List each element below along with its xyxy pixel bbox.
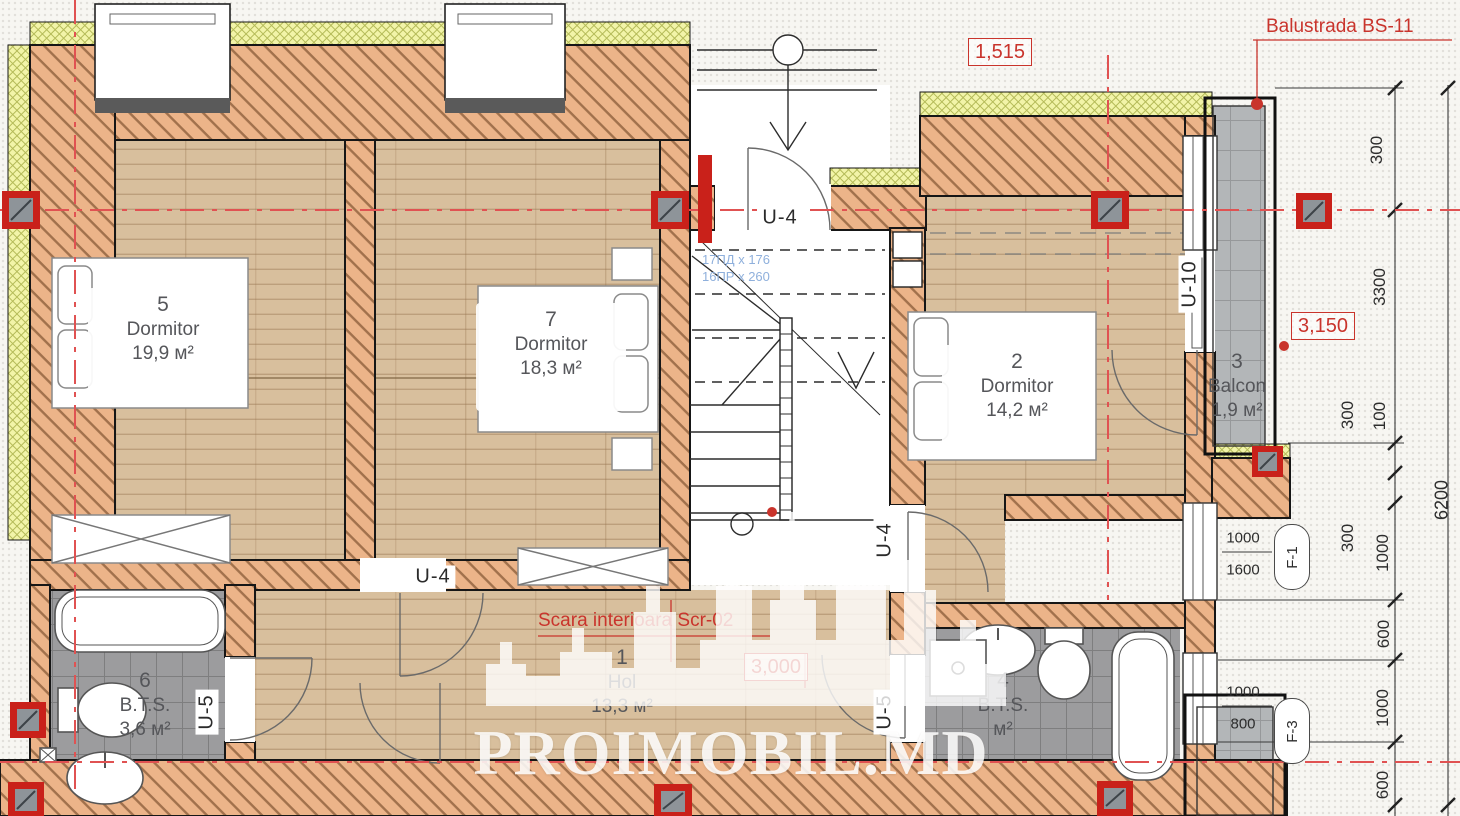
level-mark-balcony: 3,150 — [1291, 312, 1355, 340]
door-tag-u4-room7: U-4 — [410, 566, 455, 589]
door-tag-u10-balcony: U-10 — [1179, 255, 1202, 312]
stair-annotation: Scara interioara Scr-02 — [538, 610, 733, 632]
room-area: 19,9 м² — [127, 342, 200, 366]
window-tag-f1-text: F-1 — [1284, 546, 1301, 569]
door-tag-u4-stairs: U-4 — [757, 207, 802, 230]
room-label-dormitor-5: 5 Dormitor 19,9 м² — [127, 292, 200, 365]
room-name: B.T.S. — [119, 694, 170, 718]
level-mark-hol: 3,000 — [744, 653, 808, 681]
window-f1-width: 1000 — [1226, 530, 1259, 547]
dim-1000-a: 1000 — [1373, 534, 1393, 572]
dim-300-a: 300 — [1338, 401, 1358, 429]
level-mark-entry: 1,515 — [968, 38, 1032, 66]
dim-3300: 3300 — [1370, 268, 1390, 306]
dim-300-b: 300 — [1338, 524, 1358, 552]
stair-steps-line1: 17ПД x 176 — [702, 252, 770, 269]
room-area: 14,2 м² — [981, 399, 1054, 423]
dim-300-top: 300 — [1367, 136, 1387, 164]
dim-600-a: 600 — [1374, 620, 1394, 648]
room-number: 2 — [981, 349, 1054, 375]
room-label-dormitor-7: 7 Dormitor 18,3 м² — [515, 307, 588, 380]
room-name: Dormitor — [515, 333, 588, 357]
room-number: 1 — [591, 645, 653, 671]
room-area: 1,9 м² — [1208, 399, 1266, 423]
room-name: Dormitor — [981, 375, 1054, 399]
dim-100: 100 — [1370, 402, 1390, 430]
window-f3-height: 800 — [1230, 716, 1255, 733]
window-f3-width: 1000 — [1226, 684, 1259, 701]
stair-steps-line2: 16ПР x 260 — [702, 269, 770, 286]
room-number: 7 — [515, 307, 588, 333]
room-name: Balcon — [1208, 375, 1266, 399]
room-number: 3 — [1208, 349, 1266, 375]
window-tag-f1: F-1 — [1274, 524, 1310, 590]
dim-6200-total: 6200 — [1432, 480, 1453, 520]
watermark-brand: PROIMOBIL.MD — [448, 716, 1014, 790]
window-tag-f3: F-3 — [1274, 698, 1310, 764]
window-tag-f3-text: F-3 — [1284, 720, 1301, 743]
door-tag-u4-room2: U-4 — [874, 517, 897, 562]
room-area: 13,3 м² — [591, 695, 653, 719]
room-number: 6 — [119, 668, 170, 694]
room-number: 5 — [127, 292, 200, 318]
room-label-balcon-3: 3 Balcon 1,9 м² — [1208, 349, 1266, 422]
stair-steps-note: 17ПД x 176 16ПР x 260 — [702, 252, 770, 286]
room-name: B.T.S. — [978, 694, 1029, 718]
dim-600-b: 600 — [1373, 771, 1393, 799]
window-f1-height: 1600 — [1226, 562, 1259, 579]
room-area: 3,6 м² — [119, 718, 170, 742]
room-name: Dormitor — [127, 318, 200, 342]
door-tag-u5-bts6: U-5 — [196, 689, 219, 734]
room-label-hol-1: 1 Hol 13,3 м² — [591, 645, 653, 718]
floor-plan: 5 Dormitor 19,9 м² 7 Dormitor 18,3 м² 2 … — [0, 0, 1460, 816]
room-area: 18,3 м² — [515, 357, 588, 381]
dim-1000-b: 1000 — [1373, 689, 1393, 727]
room-name: Hol — [591, 671, 653, 695]
room-number: 4 — [978, 668, 1029, 694]
room-label-dormitor-2: 2 Dormitor 14,2 м² — [981, 349, 1054, 422]
room-label-bts-6: 6 B.T.S. 3,6 м² — [119, 668, 170, 741]
balustrade-annotation: Balustrada BS-11 — [1266, 16, 1414, 38]
